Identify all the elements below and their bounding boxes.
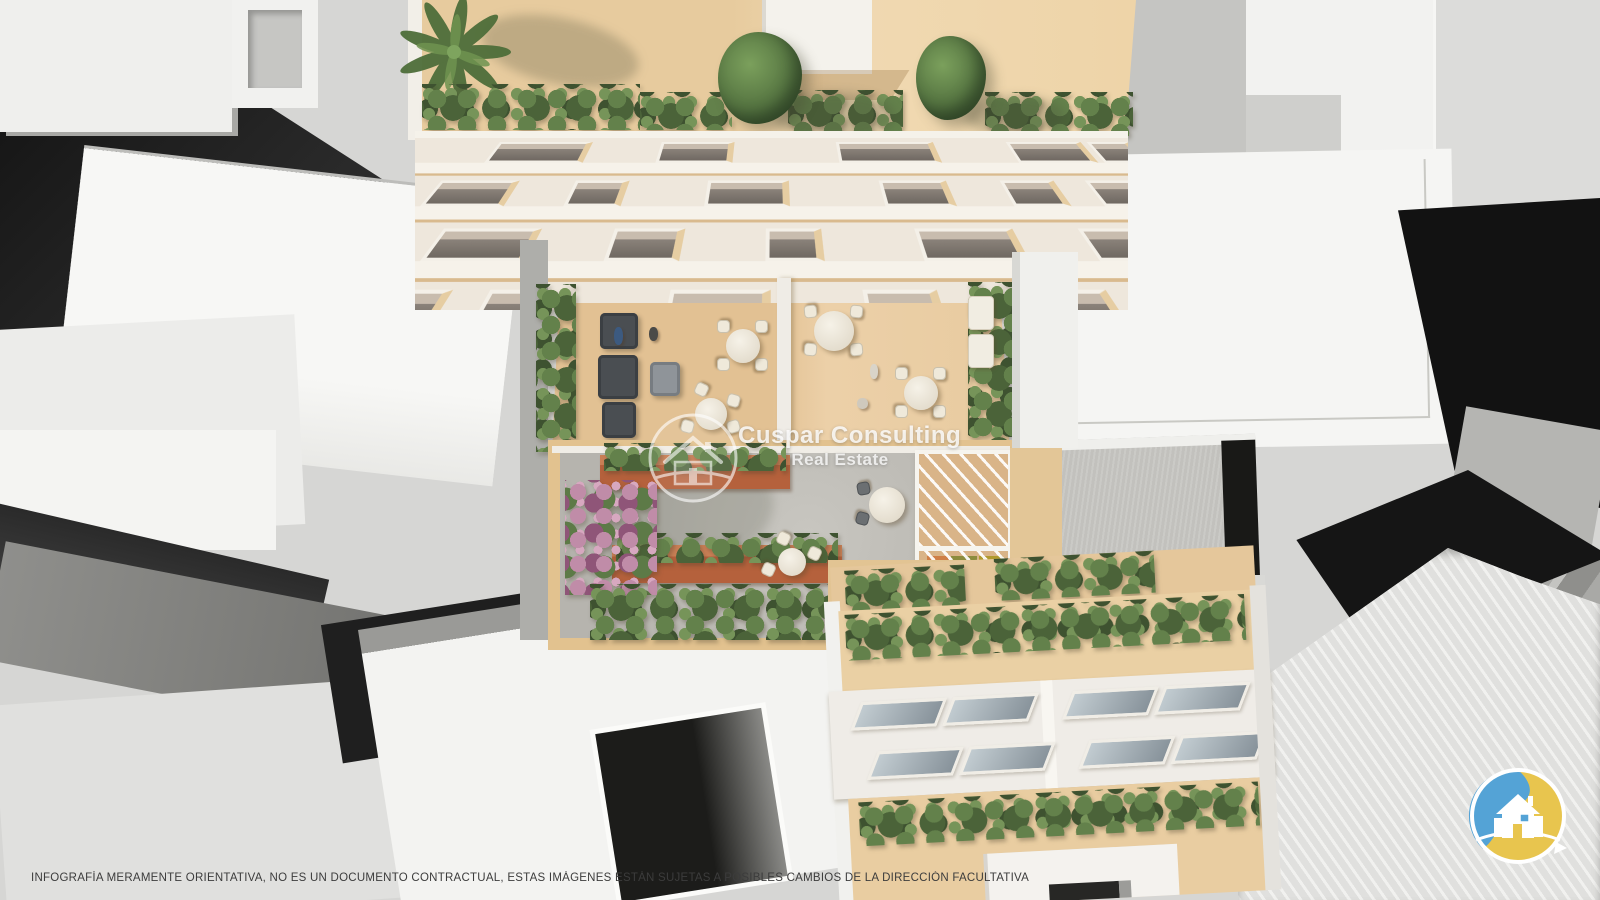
sofa-3 xyxy=(602,402,636,438)
facade-window xyxy=(484,142,593,163)
skylight xyxy=(959,742,1056,775)
armchair xyxy=(650,362,680,396)
disclaimer-text: INFOGRAFÍA MERAMENTE ORIENTATIVA, NO ES … xyxy=(31,872,1029,884)
bb-penthouse-opening xyxy=(1049,881,1120,900)
round-table xyxy=(869,487,905,523)
render-canvas: Cuspar Consulting Real Estate INFOGRAFÍA… xyxy=(0,0,1600,900)
roof-hedge-1 xyxy=(422,84,640,130)
chair xyxy=(856,481,871,496)
chair xyxy=(803,304,817,318)
tree-shadow-2 xyxy=(965,96,1065,136)
person-sitting-dark xyxy=(649,327,658,341)
chair xyxy=(849,304,863,318)
facade-window xyxy=(1085,180,1128,206)
bottom-building xyxy=(822,545,1281,900)
facade-window xyxy=(655,142,734,163)
facade-window xyxy=(765,228,824,261)
bb-hedge-walkway-1 xyxy=(844,565,966,611)
chair xyxy=(717,320,730,333)
person-plaza xyxy=(857,398,868,409)
chair xyxy=(933,367,946,380)
bb-roof-divider xyxy=(1040,680,1058,788)
bb-penthouse-wall xyxy=(1119,880,1132,898)
facade-window xyxy=(836,142,943,163)
watermark-house-logo xyxy=(647,412,739,504)
sofa-2 xyxy=(598,355,638,399)
facade-window xyxy=(1078,228,1128,261)
skylight xyxy=(867,747,964,780)
chair xyxy=(803,343,817,357)
facade-window xyxy=(415,290,453,310)
lounger-1 xyxy=(968,296,994,330)
cuspar-house-badge-logo xyxy=(1468,766,1568,866)
skylight xyxy=(1062,687,1159,720)
white-strip-building-right xyxy=(1012,252,1078,448)
chair xyxy=(849,343,863,357)
chair xyxy=(755,320,768,333)
skylight xyxy=(1171,731,1268,764)
skylight xyxy=(1154,682,1251,715)
person-sitting-blue xyxy=(614,327,623,345)
neighbor-chimney-well xyxy=(248,10,302,88)
chair xyxy=(895,367,908,380)
person-standing xyxy=(870,364,878,379)
skylight xyxy=(942,693,1039,726)
round-table xyxy=(726,329,760,363)
facade-window xyxy=(1000,180,1072,206)
facade-window xyxy=(603,228,685,261)
plaza-hedge-bottom xyxy=(590,584,855,640)
bb-hedge-walkway-2 xyxy=(994,551,1156,601)
facade-window xyxy=(879,180,958,206)
round-table xyxy=(904,376,938,410)
roof-hedge-2 xyxy=(640,92,732,130)
facade-window xyxy=(563,180,630,206)
skylight xyxy=(850,698,947,731)
watermark-division: Real Estate xyxy=(740,450,940,470)
chair xyxy=(895,405,908,418)
round-table xyxy=(778,548,806,576)
neighbor-roof-white-topleft xyxy=(0,0,232,132)
chair xyxy=(717,358,730,371)
watermark-brand: Cuspar Consulting xyxy=(738,422,998,450)
round-table xyxy=(814,311,854,351)
facade-window xyxy=(420,180,520,206)
chair xyxy=(933,405,946,418)
facade-window xyxy=(1006,142,1099,163)
chair xyxy=(755,358,768,371)
courtyard-hedge-left xyxy=(536,284,576,452)
flower-bush xyxy=(565,480,657,595)
lounger-2 xyxy=(968,334,994,368)
skylight xyxy=(1079,736,1176,769)
facade-window xyxy=(704,180,790,206)
